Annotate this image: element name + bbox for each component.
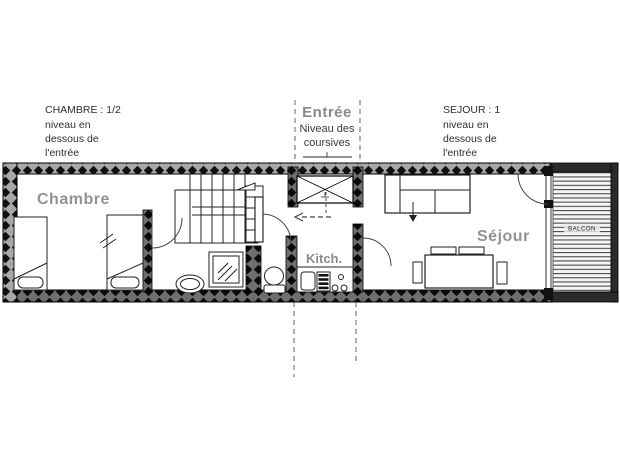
chambre-note-line-2: niveau en <box>45 119 91 131</box>
balcony-rail-right <box>611 163 618 302</box>
window-post-top <box>544 166 553 176</box>
sejour-note-line-3: dessous de <box>443 133 497 145</box>
chair-top-right <box>459 247 484 254</box>
stairs <box>175 174 263 243</box>
sejour-room-label: Séjour <box>477 228 530 245</box>
dining-table <box>425 255 493 288</box>
bed-2-pillow <box>111 277 139 288</box>
bed-1-pillow <box>18 277 43 288</box>
balcony-rail-bottom <box>551 292 618 302</box>
chair-top-left <box>431 247 456 254</box>
kitchen-right-wall <box>353 224 363 292</box>
chambre-furniture <box>14 215 143 290</box>
toilet-tank <box>264 285 285 293</box>
partition-bath-wc <box>246 246 261 292</box>
sejour-note-line-4: l'entrée <box>443 147 477 159</box>
entree-note-line-2: coursives <box>304 137 351 149</box>
chambre-note-line-4: l'entrée <box>45 147 79 159</box>
balcony-label: BALCON <box>568 227 596 233</box>
wc-door-leaf <box>255 197 263 242</box>
chair-right <box>497 262 507 284</box>
burner-knob <box>341 285 347 291</box>
kitchen-fixtures <box>297 267 353 292</box>
sejour-note-line-2: niveau en <box>443 119 489 131</box>
top-wall <box>3 163 550 174</box>
sofa <box>385 175 470 213</box>
entree-note-line-1: Niveau des <box>299 123 355 135</box>
burner-knob <box>339 275 344 280</box>
kitchen-sink <box>301 272 315 290</box>
window-post-bottom <box>544 288 553 300</box>
floor-plan-canvas: BALCON <box>0 0 620 465</box>
entry-vestibule <box>297 176 353 203</box>
burner-knob <box>332 285 338 291</box>
kitchen-door-arc <box>363 238 391 266</box>
stair-direction-arrow <box>237 183 255 190</box>
chambre-room-label: Chambre <box>37 191 110 208</box>
kitchen-left-wall <box>286 236 297 292</box>
washbasin-bowl <box>181 279 200 290</box>
chambre-note-line-3: dessous de <box>45 133 99 145</box>
sofa-bed-arrow-head <box>409 215 417 222</box>
chambre-note-line-1: CHAMBRE : 1/2 <box>45 104 121 116</box>
floor-plan-drawing: BALCON <box>0 0 620 465</box>
chair-left <box>413 262 422 283</box>
vestibule-right-wall <box>353 167 363 207</box>
entree-title: Entrée <box>302 104 352 121</box>
sejour-note-line-1: SEJOUR : 1 <box>443 104 500 116</box>
bathroom-fixtures <box>176 252 285 293</box>
balcony-rail-top <box>551 163 618 172</box>
kitchen-room-label: Kitch. <box>306 251 342 266</box>
balcony-door-arc <box>518 174 548 204</box>
entry-path-arrowhead <box>295 213 303 221</box>
partition-chambre-bath <box>143 210 152 292</box>
toilet-bowl <box>265 267 284 285</box>
balcony: BALCON <box>544 163 618 302</box>
shower-inner <box>213 256 239 283</box>
